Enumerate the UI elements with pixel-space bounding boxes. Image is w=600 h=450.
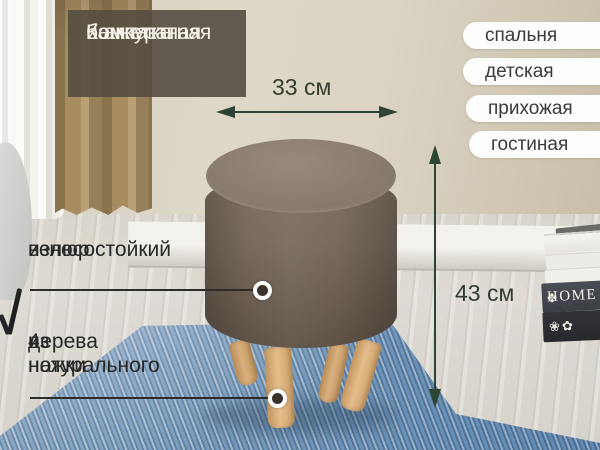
book-spine-title: HOME <box>547 287 598 307</box>
headline-box: Компактная и аккуратная банкетка <box>68 10 246 97</box>
ottoman-shadow <box>203 399 395 433</box>
width-dimension-arrow <box>216 105 398 119</box>
callout-line-text: дерева <box>28 330 98 354</box>
ottoman-seat-top <box>206 139 396 213</box>
callout-dot-icon <box>253 281 272 300</box>
magazine <box>543 230 600 254</box>
arrow-line <box>434 157 436 396</box>
floral-book: ❀✿ <box>542 310 600 343</box>
height-dimension-arrow <box>428 145 442 408</box>
width-dimension-label: 33 см <box>272 74 331 101</box>
room-pill-bedroom: спальня <box>463 22 600 49</box>
legs-callout-line <box>30 397 268 399</box>
room-pill-label: гостиная <box>491 131 568 158</box>
arrowhead-down-icon <box>429 389 441 408</box>
book-floral-icon: ❀✿ <box>549 318 575 335</box>
room-pill-kids: детская <box>463 58 600 85</box>
ottoman-wooden-leg <box>264 346 295 428</box>
height-dimension-label: 43 см <box>455 280 514 307</box>
material-callout-line <box>30 289 253 291</box>
room-pill-label: детская <box>485 58 554 85</box>
room-pill-livingroom: гостиная <box>469 131 600 158</box>
product-infographic: ✤ HOME ❀✿ Компактная и аккуратная банкет… <box>0 0 600 450</box>
arrow-line <box>228 111 386 113</box>
room-pill-label: спальня <box>485 22 557 49</box>
callout-line-text: велюр <box>28 238 90 262</box>
headline-line: банкетка <box>86 21 172 46</box>
home-book: ✤ HOME <box>541 280 600 312</box>
room-pill-hallway: прихожая <box>466 95 600 122</box>
arrowhead-right-icon <box>379 106 398 118</box>
callout-dot-icon <box>268 389 287 408</box>
room-pill-label: прихожая <box>488 95 573 122</box>
